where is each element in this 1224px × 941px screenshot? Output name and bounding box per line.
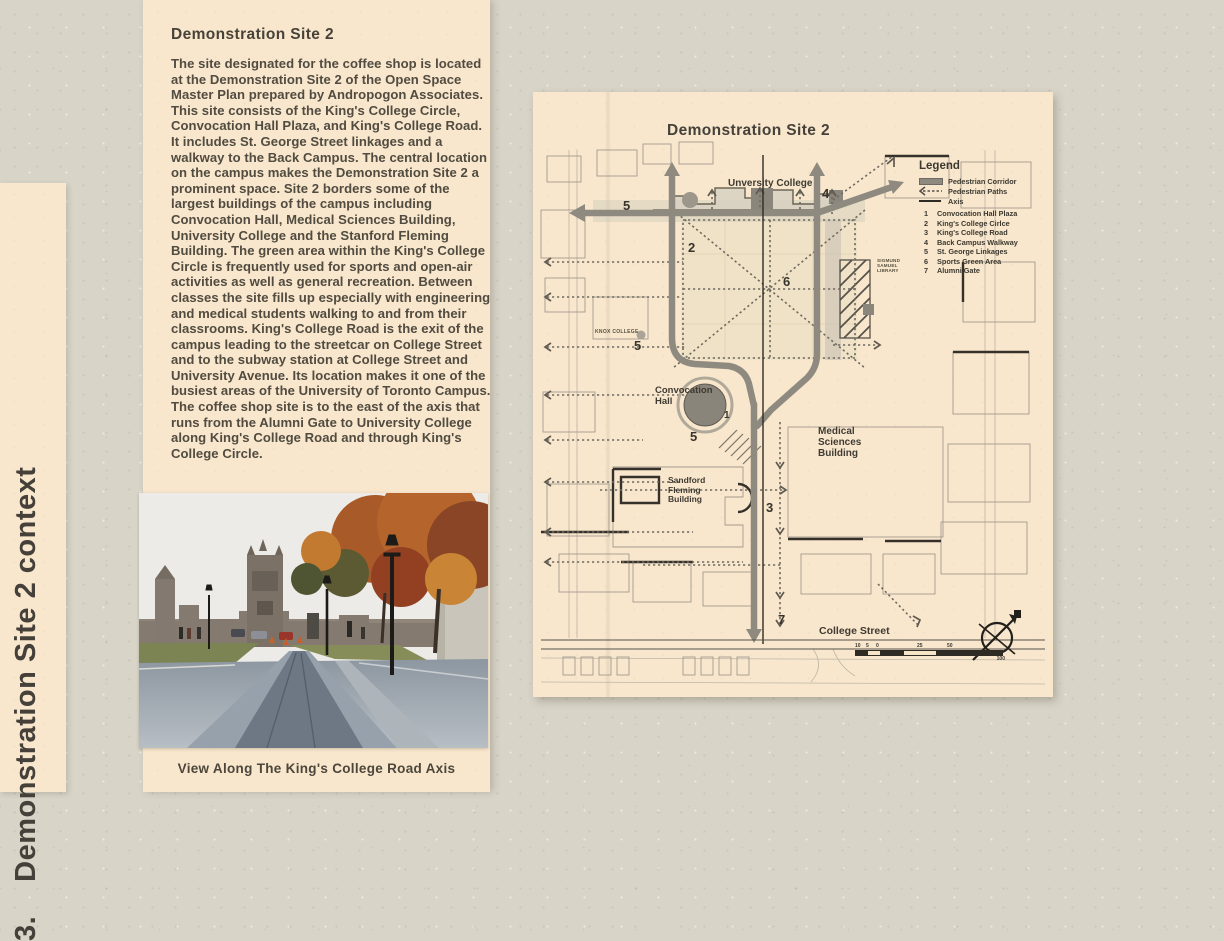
scale-bar: 10 5 0 25 50 100 <box>855 644 1005 662</box>
east-walk-shading <box>825 220 841 360</box>
section-label: 3. Demonstration Site 2 context <box>10 381 43 941</box>
label-sandford-fleming: SandfordFlemingBuilding <box>668 476 705 505</box>
legend-item-3: 3King's College Road <box>919 228 1051 238</box>
marker-5c: 5 <box>690 429 697 444</box>
label-knox-college: KNOX COLLEGE <box>595 330 639 336</box>
photo-road <box>139 651 488 748</box>
marker-2: 2 <box>688 240 695 255</box>
map-panel: Demonstration Site 2 <box>533 92 1053 697</box>
marker-3: 3 <box>766 500 773 515</box>
map-legend: Legend Pedestrian Corridor Pedestrian Pa… <box>919 160 1051 276</box>
marker-4: 4 <box>822 186 829 201</box>
section-title: Demonstration Site 2 context <box>10 467 43 882</box>
section-tab-panel: 3. Demonstration Site 2 context <box>0 183 66 792</box>
legend-item-6: 6Sports Green Area <box>919 257 1051 267</box>
label-sigmund-samuel-library: SIGMUNDSAMUELLIBRARY <box>877 258 900 273</box>
legend-item-1: 1Convocation Hall Plaza <box>919 209 1051 219</box>
scale-numbers: 10 5 0 25 50 <box>855 643 1005 649</box>
scale-end-number: 100 <box>997 656 1005 662</box>
scale-bar-segments <box>855 650 1003 656</box>
north-arrow-icon <box>965 604 1029 674</box>
photo-caption: View Along The King's College Road Axis <box>143 761 490 776</box>
marker-7: 7 <box>778 612 785 627</box>
marker-6: 6 <box>783 274 790 289</box>
marker-5b: 5 <box>634 338 641 353</box>
label-convocation-hall: ConvocationHall <box>655 386 713 407</box>
legend-title: Legend <box>919 160 1051 172</box>
dashed-arrow-icon <box>919 186 943 196</box>
article-body: The site designated for the coffee shop … <box>171 56 491 461</box>
marker-1: 1 <box>724 410 730 421</box>
legend-row-paths: Pedestrian Paths <box>919 186 1051 196</box>
section-number: 3. <box>10 916 43 941</box>
legend-row-axis: Axis <box>919 196 1051 206</box>
label-medical-sciences: MedicalSciencesBuilding <box>818 426 861 460</box>
marker-5a: 5 <box>623 198 630 213</box>
legend-item-2: 2King's College Cirlce <box>919 219 1051 229</box>
axis-line-icon <box>919 200 941 202</box>
article-heading: Demonstration Site 2 <box>171 26 334 44</box>
legend-row-corridor: Pedestrian Corridor <box>919 176 1051 186</box>
legend-item-7: 7Alumni Gate <box>919 266 1051 276</box>
campus-photo-illustration <box>139 493 488 748</box>
campus-photo <box>139 493 488 748</box>
legend-item-4: 4Back Campus Walkway <box>919 238 1051 248</box>
label-college-street: College Street <box>819 626 890 638</box>
label-university-college: Unversity College <box>728 178 812 189</box>
legend-item-5: 5St. George Linkages <box>919 247 1051 257</box>
corridor-bar-icon <box>919 178 943 185</box>
